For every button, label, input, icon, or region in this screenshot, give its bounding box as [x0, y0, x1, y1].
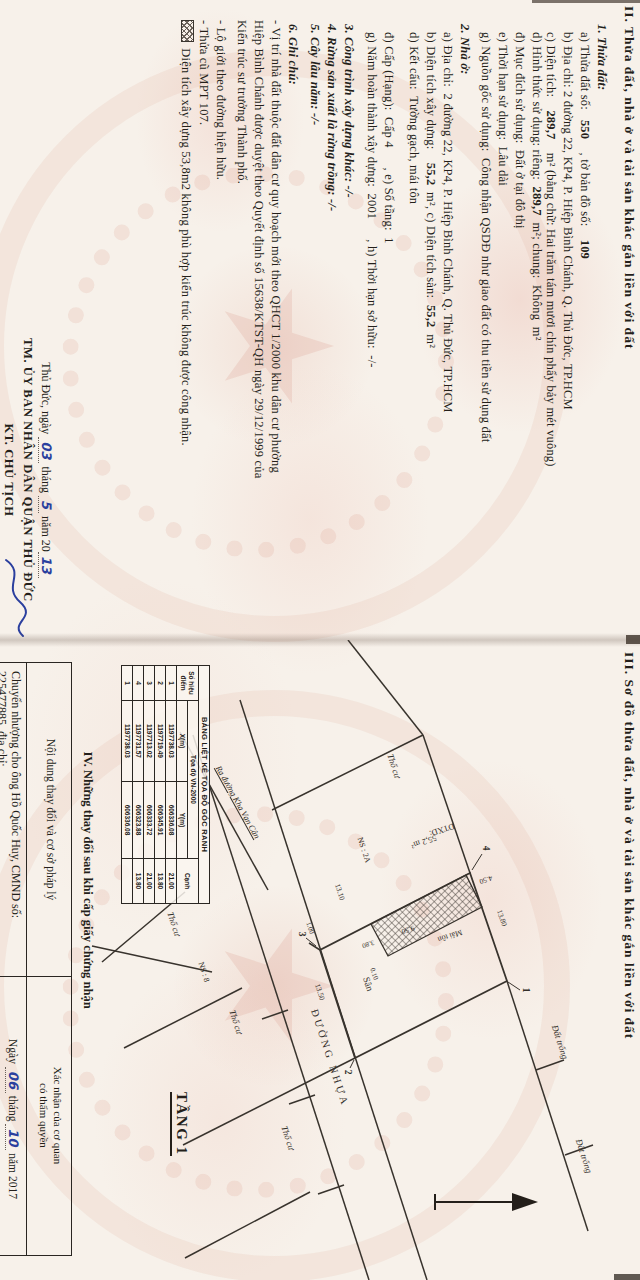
parcel-text-line: b) Địa chỉ: 2 đường 22, KP4, P. Hiệp Bìn… — [559, 32, 576, 479]
scan-edge — [532, 0, 640, 3]
parcel-info-lines: 1. Thửa đất:a) Thửa đất số: 550 , tờ bản… — [177, 10, 610, 479]
coordinate-table: BẢNG LIỆT KÊ TỌA ĐỘ GÓC RANH Số hiệu điể… — [121, 665, 210, 904]
signature-date-line: Thủ Đức, ngày 03 tháng 5 năm 2013 — [38, 302, 54, 638]
parcel-text-line: 1. Thửa đất: — [593, 24, 610, 479]
parcel-text-line: b) Diện tích xây dựng: 55,2 m², c) Diện … — [422, 32, 439, 479]
parcel-text-line: - Vị trí nhà đất thuộc đất dân cư quy ho… — [267, 20, 284, 479]
scanned-certificate: II. Thửa đất, nhà ở và tài sản khác gắn … — [0, 0, 640, 1280]
floor-label: TẦNG 1 — [170, 1092, 190, 1156]
parcel-text-line: Kiến trúc sư trưởng Thành phố. — [233, 20, 250, 479]
handwritten-day: 06 — [5, 1067, 21, 1093]
section-ii-heading: II. Thửa đất, nhà ở và tài sản khác gắn … — [621, 6, 637, 349]
parcel-text-line: đ) Mục đích sử dụng: Đất ở tại đô thị — [511, 32, 528, 479]
parcel-text-line: g) Năm hoàn thành xây dựng: 2001 , h) Th… — [363, 32, 380, 479]
parcel-text-line: 6. Ghi chú: — [284, 24, 301, 479]
cadastral-map — [0, 640, 640, 1280]
north-arrow-icon — [435, 1193, 538, 1211]
section-iv-heading: IV. Những thay đổi sau khi cấp giấy chứn… — [80, 700, 95, 1060]
parcel-text-line: - Thửa cũ MPT 107. — [195, 20, 212, 479]
house-footprint — [371, 875, 482, 956]
road-edge-lower — [193, 735, 369, 1280]
parcel-text-line: 3. Công trình xây dựng khác: -/- — [340, 24, 357, 479]
coord-row: 11197738.03606336.08 — [122, 666, 133, 904]
scan-corner — [614, 1274, 640, 1280]
handwritten-month: 5 — [38, 496, 54, 513]
coord-row: 31197713.02606333.7221.00 — [144, 666, 155, 904]
parcel-text-line: d) Kết cấu: Tường gạch, mái tôn — [405, 32, 422, 479]
page-2: II. Thửa đất, nhà ở và tài sản khác gắn … — [0, 0, 640, 640]
changes-table-header-rule — [26, 663, 27, 1255]
changes-col-right-header: Xác nhận của cơ quan có thẩm quyền — [37, 976, 65, 1255]
transfer-entry-date: Ngày 06 tháng 10 năm 2017 — [6, 983, 21, 1255]
parcel-text-line: g) Nguồn gốc sử dụng: Công nhận QSDĐ như… — [477, 32, 494, 479]
page-3: III. Sơ đồ thửa đất, nhà ở và tài sản kh… — [0, 640, 640, 1280]
coord-row: 21197719.49606345.9113.80 — [155, 666, 166, 904]
parcel-text-line: 4. Rừng sản xuất là rừng trồng: -/- — [323, 24, 340, 479]
changes-table: Nội dung thay đổi và cơ sở pháp lý Xác n… — [0, 662, 72, 1256]
parcel-text-line: 5. Cây lâu năm: -/- — [306, 24, 323, 479]
parcel-text-line: - Lộ giới theo đường hiện hữu. — [212, 20, 229, 479]
fold-shadow — [626, 635, 640, 644]
handwritten-day: 03 — [38, 437, 54, 463]
parcel-text-line: 2. Nhà ở: — [456, 24, 473, 479]
signature-ink — [0, 556, 28, 640]
parcel-text-line: a) Thửa đất số: 550 , tờ bản đồ số: 109 — [576, 32, 593, 479]
transfer-entry: Chuyển nhượng cho ông Hồ Quốc Huy, CMND … — [0, 671, 23, 966]
hatch-legend-icon — [181, 20, 194, 42]
parcel-text-line: Hiệp Bình Chánh được duyệt theo Quyết đị… — [250, 20, 267, 479]
handwritten-month: 10 — [5, 1124, 21, 1150]
parcel-text-line: Diện tích xây dựng 53,8m2 không phù hợp … — [177, 20, 194, 479]
coord-row: 11197738.03606336.0821.00 — [166, 666, 177, 904]
changes-col-left-header: Nội dung thay đổi và cơ sở pháp lý — [45, 663, 57, 976]
parcel-text-line: a) Địa chỉ: 2 đường 22, KP4, P. Hiệp Bìn… — [439, 32, 456, 479]
parcel-text-line: e) Thời hạn sử dụng: Lâu dài — [494, 32, 511, 479]
parcel-text-line: đ) Cấp (Hạng): Cấp 4 , e) Số tầng: 1 — [380, 32, 397, 479]
coordinate-table-title: BẢNG LIỆT KÊ TỌA ĐỘ GÓC RANH — [199, 666, 210, 904]
coord-row: 41197731.57606323.8813.80 — [133, 666, 144, 904]
handwritten-year: 13 — [38, 552, 54, 578]
rotated-document-spread: II. Thửa đất, nhà ở và tài sản khác gắn … — [0, 0, 640, 1280]
